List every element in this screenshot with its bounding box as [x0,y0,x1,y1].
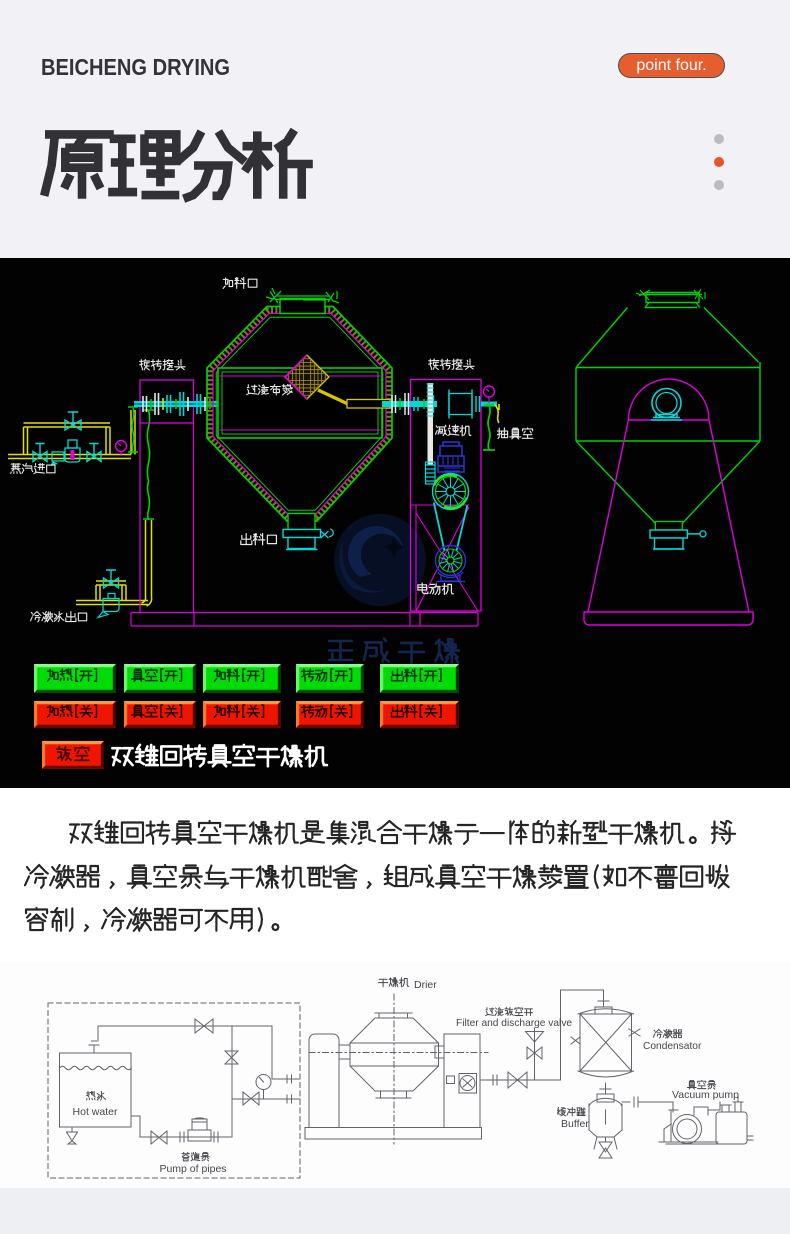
svg-text:Drier: Drier [414,979,437,991]
svg-text:Condensator: Condensator [643,1041,702,1052]
svg-text:Hot water: Hot water [73,1106,118,1118]
svg-text:Vacuum pump: Vacuum pump [672,1089,739,1101]
svg-text:Filter and discharge valve: Filter and discharge valve [456,1018,572,1029]
svg-text:Buffer: Buffer [561,1118,589,1130]
svg-text:Pump of pipes: Pump of pipes [159,1163,226,1175]
